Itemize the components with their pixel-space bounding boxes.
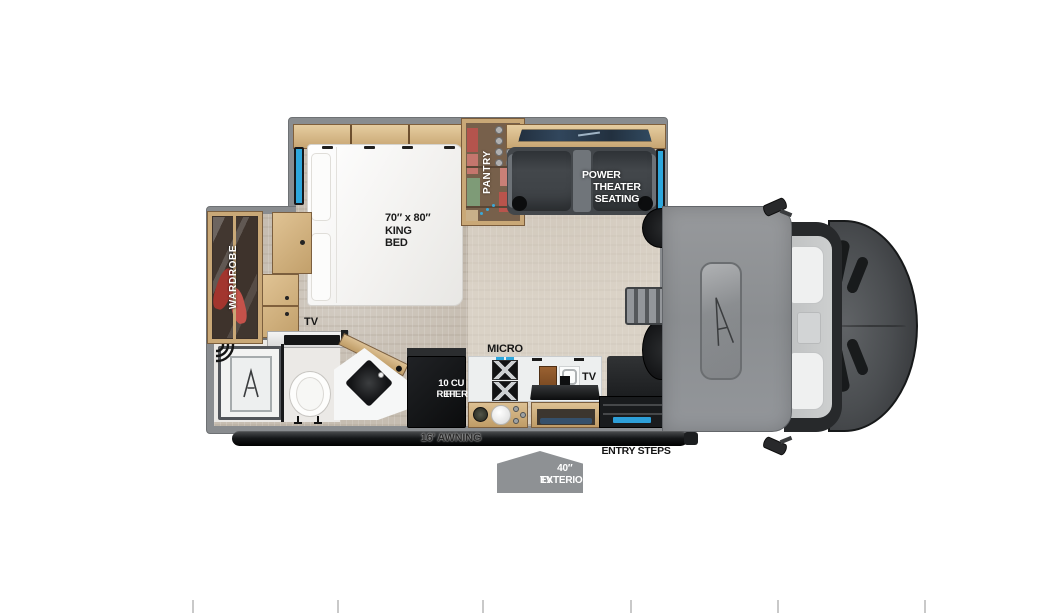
- brand-a-icon: [241, 368, 261, 400]
- exterior-tv-label: 40″ EXTERIOR TV: [497, 463, 583, 475]
- bed-type-text-2: BED: [385, 237, 408, 250]
- cabinet-knob: [285, 312, 289, 316]
- theater-text-1: POWER: [582, 169, 621, 181]
- range-burner: [492, 381, 518, 401]
- ruler-tick: [924, 600, 926, 613]
- media-player: [540, 418, 592, 424]
- exterior-tv-text-2: TV: [540, 475, 552, 487]
- cabinet-handle: [402, 146, 413, 149]
- faucet-knob: [513, 406, 519, 412]
- kitchen-tv-label: TV: [577, 371, 601, 383]
- entry-steps-label: ENTRY STEPS: [598, 445, 674, 457]
- ruler-tick: [482, 600, 484, 613]
- hood-crease: [834, 325, 906, 327]
- cabinet-handle: [532, 358, 542, 361]
- drawer-knob: [300, 240, 305, 245]
- nightstand: [272, 212, 312, 274]
- king-bed-label: 70″ x 80″ KING BED: [325, 212, 445, 237]
- kitchen-sink: [491, 405, 511, 425]
- cab-seat: [790, 246, 824, 304]
- bedroom-tv: [284, 335, 340, 345]
- faucet-knob: [513, 418, 519, 424]
- range-knob: [506, 357, 514, 360]
- microwave-label: MICRO: [481, 343, 529, 355]
- faucet: [378, 372, 384, 378]
- refrigerator-label: 10 CU FT REFER: [407, 378, 466, 389]
- theater-text-2: THEATER SEATING: [582, 181, 652, 205]
- cabinet-handle: [574, 358, 584, 361]
- floor-mark: [293, 412, 303, 422]
- sink-dial: [473, 407, 488, 422]
- entry-step-light: [613, 417, 651, 423]
- ruler-tick: [337, 600, 339, 613]
- cupholder: [512, 196, 527, 211]
- shower-glass-wall: [281, 344, 284, 422]
- cab-seat: [790, 352, 824, 410]
- cabinet-divider: [263, 305, 298, 307]
- showerhead-icon: [216, 344, 238, 366]
- bedroom-tv-label: TV: [296, 316, 326, 328]
- pillow: [311, 153, 331, 221]
- theater-seating-label: POWER THEATER SEATING: [512, 169, 652, 181]
- cabinet-handle: [444, 146, 455, 149]
- awning-label: 16' AWNING: [386, 432, 516, 444]
- cabinet-handle: [364, 146, 375, 149]
- ruler-tick: [777, 600, 779, 613]
- pantry-item: [466, 210, 478, 221]
- cab-console: [797, 312, 821, 344]
- awning-bracket: [684, 432, 698, 445]
- wardrobe-label: WARDROBE: [228, 222, 242, 332]
- pantry-item: [467, 154, 478, 174]
- ruler-tick: [630, 600, 632, 613]
- faucet-knob: [520, 412, 526, 418]
- living-window: [656, 149, 665, 213]
- microwave-cabinet: [539, 366, 557, 388]
- bed-size-text: 70″ x 80″: [385, 212, 430, 225]
- rv-floorplan: 70″ x 80″ KING BED WARDROBE TV 10 CU: [0, 0, 1051, 615]
- entry-steps: [599, 396, 669, 428]
- step-edge: [603, 404, 665, 406]
- bed-type-text-1: KING: [385, 225, 412, 238]
- door-handle: [395, 365, 403, 373]
- range-knob: [496, 357, 504, 360]
- kitchen-tv: [530, 385, 600, 400]
- cabinet-handle: [322, 146, 333, 149]
- step-edge: [603, 413, 665, 415]
- floor-mark: [313, 412, 323, 422]
- range-burner: [492, 360, 518, 380]
- pantry-label: PANTRY: [482, 117, 496, 227]
- refer-text-2: REFER: [437, 389, 468, 400]
- pillow: [311, 233, 331, 301]
- pantry-item: [467, 128, 478, 152]
- mirror-arm: [780, 436, 793, 444]
- ruler-tick: [192, 600, 194, 613]
- pantry-item: [467, 178, 480, 206]
- cabinet-knob: [285, 296, 289, 300]
- toilet-lid: [296, 377, 324, 411]
- bedroom-window: [294, 147, 304, 205]
